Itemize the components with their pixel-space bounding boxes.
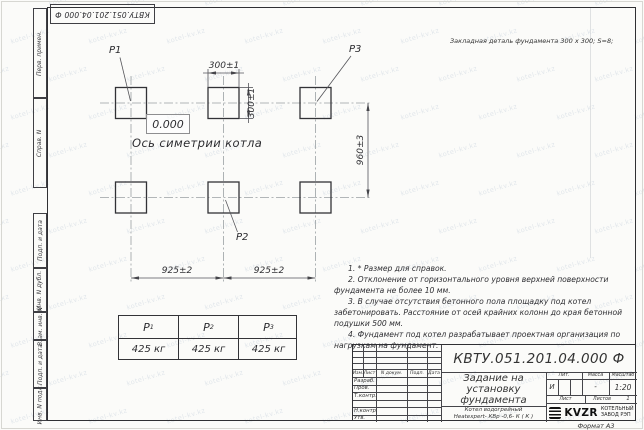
row-tkontr: Т.контр. bbox=[354, 392, 376, 400]
logo-caption-line: ЗАВОД РЭП bbox=[601, 413, 634, 419]
point-label-p2: P2 bbox=[236, 232, 248, 243]
col-ndokum: N докум. bbox=[376, 369, 407, 377]
note-item: 1. * Размер для справок. bbox=[334, 263, 632, 274]
row-razrab: Разраб. bbox=[354, 377, 376, 385]
drawing-sheet: kotel-kv.kzkotel-kv.kzkotel-kv.kzkotel-k… bbox=[0, 0, 644, 430]
leader-line bbox=[317, 56, 351, 102]
table-header-p2: P2 bbox=[179, 316, 238, 338]
kvzr-logo-caption: КОТЕЛЬНЫЙ ЗАВОД РЭП bbox=[601, 407, 634, 418]
product-line: Heatexpert- КВр -0,6- К ( К ) bbox=[454, 414, 533, 421]
p-symbol: P bbox=[203, 321, 210, 334]
symmetry-axis-label: Ось симетрии котла bbox=[132, 136, 262, 150]
col-izm: Изм. bbox=[353, 369, 363, 377]
mass-label: Масса bbox=[582, 372, 609, 379]
note-item: 2. Отклонение от горизонтального уровня … bbox=[334, 274, 632, 296]
point-label-p3: P3 bbox=[349, 44, 361, 55]
p-subscript: 1 bbox=[150, 323, 154, 331]
table-header-p1: P1 bbox=[119, 316, 178, 338]
sheets-label: Листов bbox=[585, 395, 619, 403]
title-block: Изм. Лист N докум. Подп. Дата Разраб. Пр… bbox=[352, 344, 636, 421]
table-value-p3: 425 кг bbox=[239, 339, 298, 360]
col-data: Дата bbox=[427, 369, 441, 377]
company-logo: KVZR КОТЕЛЬНЫЙ ЗАВОД РЭП bbox=[546, 403, 637, 422]
leader-line bbox=[120, 58, 131, 102]
row-blank bbox=[354, 400, 376, 408]
sheets-value: 1 bbox=[619, 395, 637, 403]
elevation-mark: 0.000 bbox=[146, 114, 190, 134]
p-symbol: P bbox=[143, 321, 150, 334]
product-line: Котел водогрейный bbox=[465, 407, 523, 414]
row-prov: Пров. bbox=[354, 385, 376, 393]
scale-label: Масштаб bbox=[609, 372, 637, 379]
row-nkontr: Н.контр. bbox=[354, 407, 376, 415]
scale-value: 1:20 bbox=[609, 379, 637, 395]
dim-side-height: 300±1 bbox=[247, 81, 257, 125]
row-utv: Утв. bbox=[354, 415, 376, 423]
document-designation: КВТУ.051.201.04.000 Ф bbox=[441, 345, 637, 372]
table-value-p2: 425 кг bbox=[179, 339, 238, 360]
title-line: фундамента bbox=[460, 395, 526, 406]
p-symbol: P bbox=[263, 321, 270, 334]
dim-top-width: 300±1 bbox=[204, 61, 244, 71]
product-name: Котел водогрейный Heatexpert- КВр -0,6- … bbox=[441, 406, 546, 422]
title-line: Задание на bbox=[463, 373, 524, 384]
lit-label: Лит. bbox=[546, 372, 582, 379]
sheet-label: Лист bbox=[546, 395, 585, 403]
lit-value: И bbox=[546, 379, 558, 395]
notes-block: 1. * Размер для справок. 2. Отклонение о… bbox=[334, 263, 632, 351]
kvzr-logo-icon bbox=[549, 407, 561, 419]
kvzr-logo-text: KVZR bbox=[564, 407, 598, 419]
mass-value: - bbox=[582, 379, 609, 395]
title-line: установку bbox=[467, 384, 521, 395]
table-value-p1: 425 кг bbox=[119, 339, 178, 360]
document-title: Задание на установку фундамента bbox=[441, 372, 546, 406]
p-subscript: 2 bbox=[210, 323, 214, 331]
dim-span-left: 925±2 bbox=[157, 266, 197, 276]
col-podp: Подп. bbox=[407, 369, 427, 377]
point-label-p1: P1 bbox=[109, 45, 121, 56]
p-subscript: 3 bbox=[270, 323, 274, 331]
format-label: Формат А3 bbox=[556, 422, 636, 430]
leader-line bbox=[226, 200, 238, 232]
note-item: 3. В случае отсутствия бетонного пола пл… bbox=[334, 296, 632, 329]
table-header-p3: P3 bbox=[239, 316, 298, 338]
col-list: Лист bbox=[363, 369, 376, 377]
dim-span-right: 925±2 bbox=[249, 266, 289, 276]
load-table: P1 P2 P3 425 кг 425 кг 425 кг bbox=[118, 315, 297, 360]
dim-row-spacing: 960±3 bbox=[356, 127, 366, 173]
